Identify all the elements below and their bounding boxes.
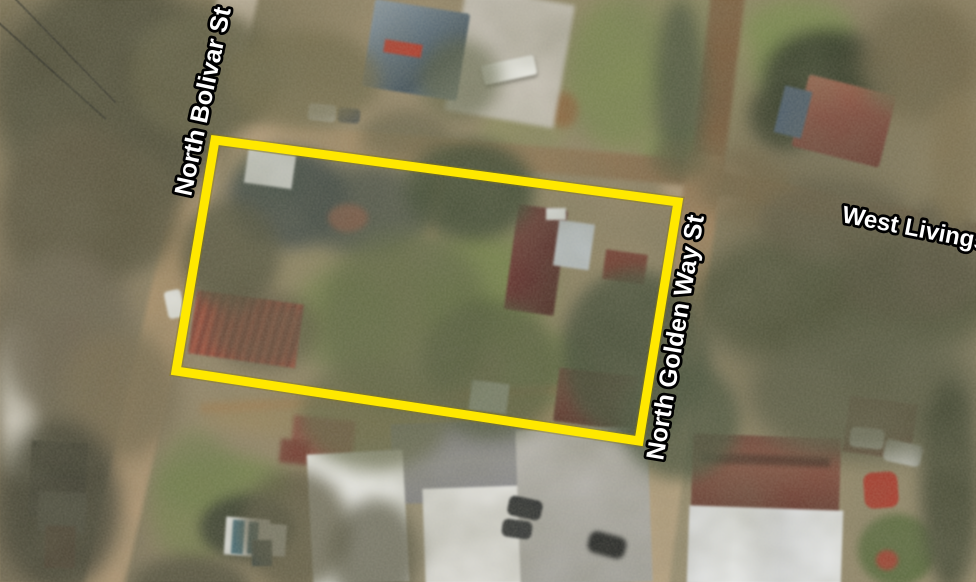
parcel-boundary [176, 140, 678, 441]
street-label-west-livingston: West Livings [840, 201, 976, 256]
aerial-map-canvas[interactable]: North Bolivar St North Golden Way St Wes… [0, 0, 976, 582]
parcel-boundary-underglow [176, 140, 678, 441]
street-label-north-bolivar: North Bolivar St [169, 4, 236, 198]
map-annotation-overlay: North Bolivar St North Golden Way St Wes… [0, 0, 976, 582]
